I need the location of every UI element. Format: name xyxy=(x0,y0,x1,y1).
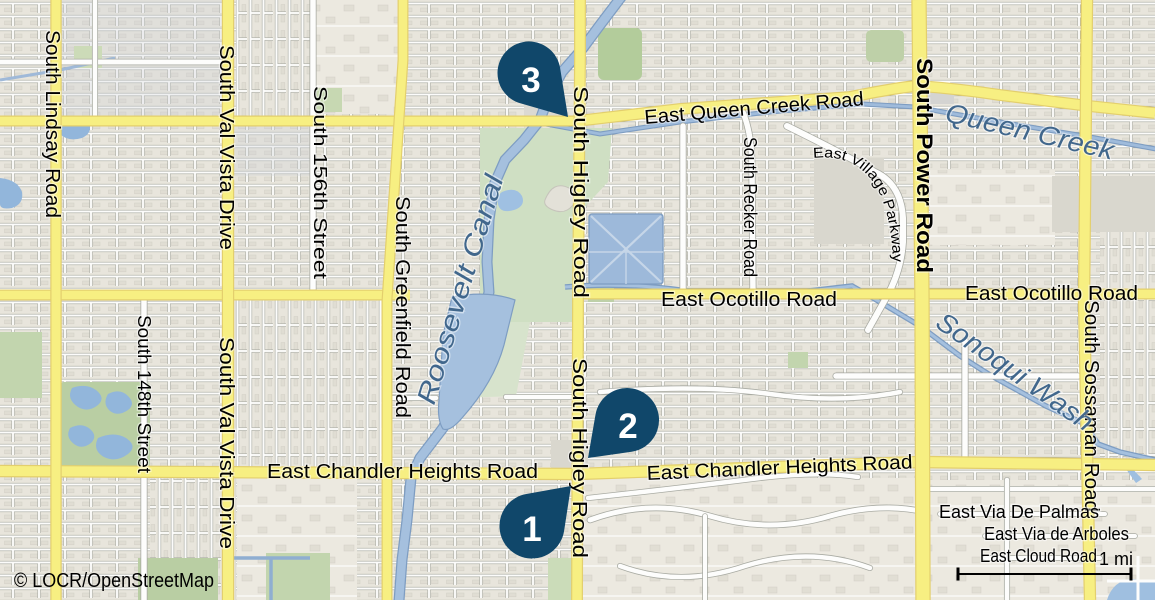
svg-text:East Ocotillo Road: East Ocotillo Road xyxy=(965,283,1138,305)
svg-text:East Chandler Heights Road: East Chandler Heights Road xyxy=(267,461,538,483)
svg-text:South 156th Street: South 156th Street xyxy=(310,86,330,279)
svg-text:© LOCR/OpenStreetMap: © LOCR/OpenStreetMap xyxy=(14,570,214,592)
svg-text:1 mi: 1 mi xyxy=(1099,549,1133,569)
svg-text:1: 1 xyxy=(522,510,541,549)
svg-text:East Cloud Road: East Cloud Road xyxy=(980,546,1097,566)
svg-text:South Greenfield Road: South Greenfield Road xyxy=(391,196,413,418)
svg-text:South Val Vista Drive: South Val Vista Drive xyxy=(215,337,237,549)
svg-text:2: 2 xyxy=(618,407,637,446)
svg-text:East Via de Arboles: East Via de Arboles xyxy=(984,524,1129,544)
svg-text:South Higley Road: South Higley Road xyxy=(568,358,590,558)
svg-text:South Recker Road: South Recker Road xyxy=(740,137,760,277)
svg-text:East Ocotillo Road: East Ocotillo Road xyxy=(661,289,837,311)
svg-text:South Higley Road: South Higley Road xyxy=(569,86,591,298)
svg-text:South Val Vista Drive: South Val Vista Drive xyxy=(215,45,237,250)
svg-text:3: 3 xyxy=(521,61,540,100)
svg-text:East Via De Palmas: East Via De Palmas xyxy=(939,502,1099,522)
svg-text:South Lindsay Road: South Lindsay Road xyxy=(41,30,63,218)
svg-text:South 148th Street: South 148th Street xyxy=(134,315,154,473)
svg-text:South Power Road: South Power Road xyxy=(912,58,937,273)
